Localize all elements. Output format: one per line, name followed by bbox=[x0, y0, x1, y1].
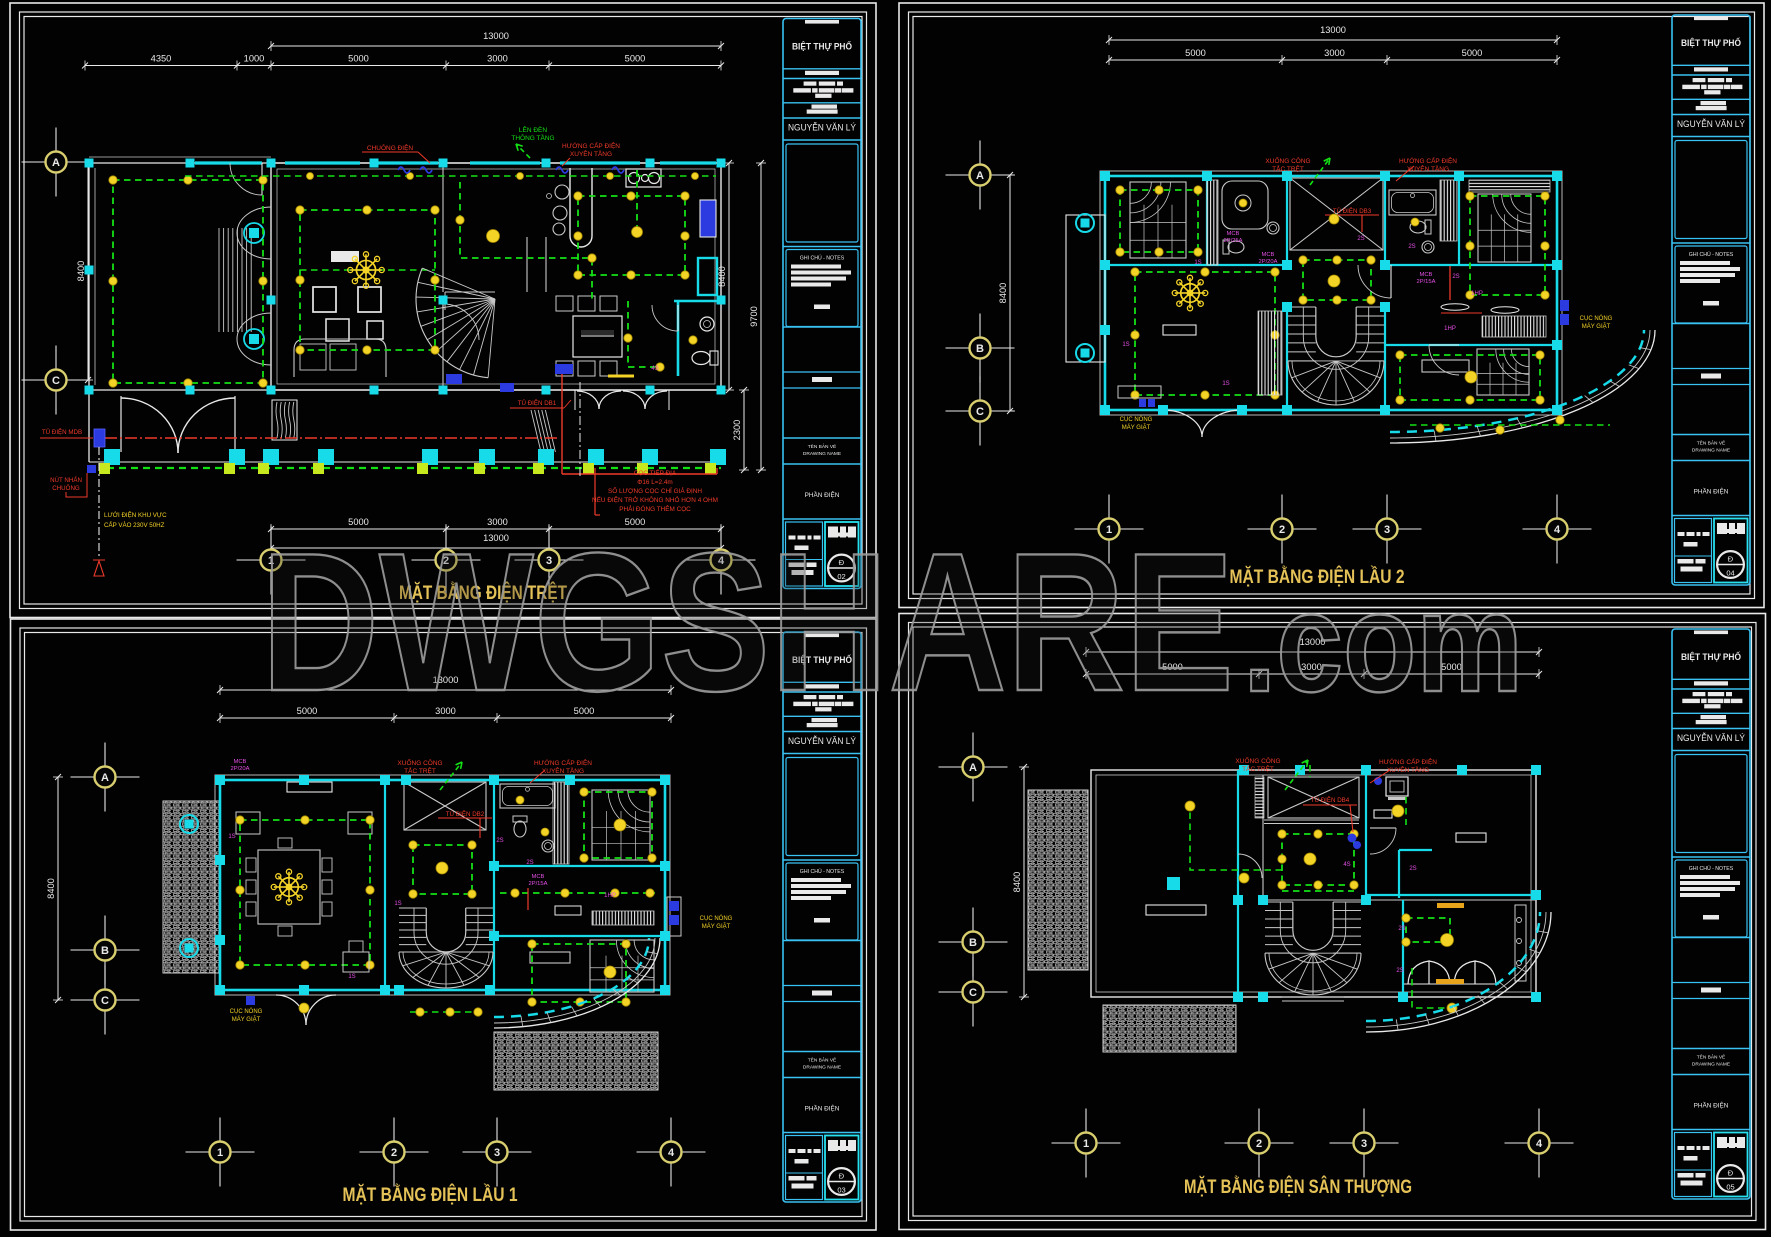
svg-text:TỦ ĐIỆN DB3: TỦ ĐIỆN DB3 bbox=[1333, 207, 1372, 215]
svg-text:Đ: Đ bbox=[1728, 555, 1734, 564]
svg-text:TẮC TRỆT: TẮC TRỆT bbox=[404, 766, 436, 775]
svg-text:2: 2 bbox=[391, 1147, 397, 1159]
svg-text:NGUYỄN VĂN LÝ: NGUYỄN VĂN LÝ bbox=[788, 122, 856, 133]
svg-text:MÁY GIẶT: MÁY GIẶT bbox=[702, 923, 731, 930]
svg-text:A: A bbox=[976, 170, 984, 182]
svg-text:2S: 2S bbox=[1452, 274, 1459, 280]
svg-text:2P/20A: 2P/20A bbox=[1258, 259, 1277, 265]
svg-text:MÁY GIẶT: MÁY GIẶT bbox=[1582, 323, 1611, 330]
svg-text:CỤC NÓNG: CỤC NÓNG bbox=[700, 915, 733, 922]
svg-text:MCB: MCB bbox=[234, 759, 247, 765]
svg-text:TỦ ĐIỆN DB4: TỦ ĐIỆN DB4 bbox=[1311, 796, 1350, 804]
svg-text:DRAWING NAME: DRAWING NAME bbox=[803, 1065, 841, 1071]
svg-text:BIỆT THỰ PHỐ: BIỆT THỰ PHỐ bbox=[1681, 37, 1741, 48]
svg-text:CHUÔNG ĐIỆN: CHUÔNG ĐIỆN bbox=[367, 143, 414, 152]
svg-text:4S: 4S bbox=[651, 366, 658, 372]
svg-text:2S: 2S bbox=[1398, 926, 1405, 932]
svg-text:.com: .com bbox=[1243, 563, 1523, 722]
svg-text:MÁY GIẶT: MÁY GIẶT bbox=[1122, 424, 1151, 431]
svg-text:2P/15A: 2P/15A bbox=[528, 881, 547, 887]
svg-text:2S: 2S bbox=[496, 838, 503, 844]
svg-text:A: A bbox=[52, 157, 60, 169]
svg-text:5000: 5000 bbox=[625, 54, 646, 64]
svg-text:1HP: 1HP bbox=[1471, 291, 1483, 297]
svg-text:NGUYỄN VĂN LÝ: NGUYỄN VĂN LÝ bbox=[1677, 732, 1745, 743]
svg-text:2: 2 bbox=[1256, 1138, 1262, 1150]
svg-text:TỦ ĐIỆN DB2: TỦ ĐIỆN DB2 bbox=[446, 810, 485, 818]
svg-text:GHI CHÚ - NOTES: GHI CHÚ - NOTES bbox=[800, 868, 845, 875]
svg-text:2300: 2300 bbox=[732, 420, 742, 441]
svg-text:NGUYỄN VĂN LÝ: NGUYỄN VĂN LÝ bbox=[1677, 118, 1745, 129]
svg-text:1S: 1S bbox=[348, 974, 355, 980]
svg-text:DWGSHARE: DWGSHARE bbox=[261, 512, 1234, 732]
svg-text:Φ16 L=2.4m: Φ16 L=2.4m bbox=[637, 479, 672, 486]
svg-text:13000: 13000 bbox=[483, 31, 509, 41]
svg-text:1HP: 1HP bbox=[1444, 326, 1456, 332]
svg-text:2S: 2S bbox=[526, 860, 533, 866]
svg-text:CỤC NÓNG: CỤC NÓNG bbox=[230, 1008, 263, 1015]
svg-text:B: B bbox=[969, 937, 977, 949]
svg-text:Đ: Đ bbox=[1728, 1169, 1734, 1178]
svg-text:Đ: Đ bbox=[839, 1172, 845, 1181]
svg-text:5000: 5000 bbox=[1462, 48, 1483, 58]
svg-text:MẶT BẰNG ĐIỆN LẦU 1: MẶT BẰNG ĐIỆN LẦU 1 bbox=[343, 1184, 518, 1206]
svg-text:4: 4 bbox=[668, 1147, 675, 1159]
svg-text:NGUYỄN VĂN LÝ: NGUYỄN VĂN LÝ bbox=[788, 735, 856, 746]
svg-text:A: A bbox=[101, 772, 109, 784]
svg-text:CỤC NÓNG: CỤC NÓNG bbox=[1120, 416, 1153, 423]
svg-text:2S: 2S bbox=[1357, 236, 1364, 242]
svg-text:BIỆT THỰ PHỐ: BIỆT THỰ PHỐ bbox=[792, 41, 852, 52]
svg-text:DRAWING NAME: DRAWING NAME bbox=[1692, 1062, 1730, 1068]
svg-text:GHI CHÚ - NOTES: GHI CHÚ - NOTES bbox=[800, 255, 845, 262]
svg-text:3000: 3000 bbox=[487, 54, 508, 64]
svg-text:CỤC NÓNG: CỤC NÓNG bbox=[1580, 315, 1613, 322]
svg-text:CHUÔNG: CHUÔNG bbox=[52, 485, 80, 492]
svg-text:MẶT BẰNG ĐIỆN SÂN THƯỢNG: MẶT BẰNG ĐIỆN SÂN THƯỢNG bbox=[1184, 1176, 1412, 1198]
svg-text:MCB: MCB bbox=[1420, 272, 1433, 278]
svg-text:5000: 5000 bbox=[348, 54, 369, 64]
svg-text:1S: 1S bbox=[1222, 381, 1229, 387]
svg-text:DRAWING NAME: DRAWING NAME bbox=[803, 451, 841, 457]
svg-text:TỦ ĐIỆN MDB: TỦ ĐIỆN MDB bbox=[42, 428, 82, 436]
svg-text:5000: 5000 bbox=[1185, 48, 1206, 58]
svg-text:LƯỚI ĐIỆN KHU VỰC: LƯỚI ĐIỆN KHU VỰC bbox=[104, 511, 167, 519]
svg-text:2S: 2S bbox=[1408, 244, 1415, 250]
svg-text:1S: 1S bbox=[394, 901, 401, 907]
svg-text:3: 3 bbox=[1361, 1138, 1367, 1150]
svg-text:C: C bbox=[52, 375, 60, 387]
svg-text:MCB: MCB bbox=[1227, 231, 1240, 237]
svg-text:1S: 1S bbox=[228, 834, 235, 840]
svg-text:MÁY GIẶT: MÁY GIẶT bbox=[232, 1016, 261, 1023]
svg-text:05: 05 bbox=[1726, 1183, 1734, 1192]
svg-text:8400: 8400 bbox=[717, 266, 727, 287]
svg-text:03: 03 bbox=[837, 1186, 845, 1195]
svg-text:2P/25A: 2P/25A bbox=[1223, 238, 1242, 244]
svg-text:TẮC TRỆT: TẮC TRỆT bbox=[1272, 164, 1304, 173]
svg-text:B: B bbox=[976, 343, 984, 355]
svg-text:13000: 13000 bbox=[1320, 25, 1346, 35]
svg-text:2S: 2S bbox=[1409, 866, 1416, 872]
svg-text:4350: 4350 bbox=[151, 54, 172, 64]
svg-text:4: 4 bbox=[1554, 524, 1561, 536]
svg-text:BIỆT THỰ PHỐ: BIỆT THỰ PHỐ bbox=[1681, 651, 1741, 662]
svg-text:TỦ ĐIỆN DB1: TỦ ĐIỆN DB1 bbox=[518, 399, 557, 407]
svg-text:B: B bbox=[101, 945, 109, 957]
svg-text:4: 4 bbox=[1536, 1138, 1543, 1150]
svg-text:1HP: 1HP bbox=[604, 893, 616, 899]
svg-text:TẮC TRỆT: TẮC TRỆT bbox=[1242, 764, 1274, 773]
svg-text:LÊN ĐÈN: LÊN ĐÈN bbox=[519, 125, 547, 134]
svg-text:NÚT NHẤN: NÚT NHẤN bbox=[50, 477, 82, 484]
svg-text:1: 1 bbox=[217, 1147, 223, 1159]
svg-text:MCB: MCB bbox=[1262, 252, 1275, 258]
svg-text:04: 04 bbox=[1726, 569, 1734, 578]
svg-text:MCB: MCB bbox=[532, 874, 545, 880]
svg-text:8400: 8400 bbox=[46, 878, 56, 899]
svg-text:C: C bbox=[101, 995, 109, 1007]
svg-text:C: C bbox=[969, 987, 977, 999]
svg-text:8400: 8400 bbox=[1012, 872, 1022, 893]
svg-text:1: 1 bbox=[1083, 1138, 1089, 1150]
svg-text:2: 2 bbox=[1279, 524, 1285, 536]
svg-text:1S: 1S bbox=[1194, 260, 1201, 266]
svg-text:3: 3 bbox=[494, 1147, 500, 1159]
svg-text:C: C bbox=[976, 406, 984, 418]
svg-text:CẤP VÀO 230V 50HZ: CẤP VÀO 230V 50HZ bbox=[104, 522, 165, 529]
svg-text:2P/15A: 2P/15A bbox=[1416, 279, 1435, 285]
svg-text:4S: 4S bbox=[1343, 862, 1350, 868]
svg-text:9700: 9700 bbox=[749, 306, 759, 327]
svg-text:2P/20A: 2P/20A bbox=[230, 766, 249, 772]
svg-text:3: 3 bbox=[1384, 524, 1390, 536]
svg-text:GHI CHÚ - NOTES: GHI CHÚ - NOTES bbox=[1689, 251, 1734, 258]
svg-text:2S: 2S bbox=[1396, 968, 1403, 974]
svg-text:A: A bbox=[969, 762, 977, 774]
svg-text:DRAWING NAME: DRAWING NAME bbox=[1692, 448, 1730, 454]
svg-text:8400: 8400 bbox=[998, 283, 1008, 304]
svg-text:GHI CHÚ - NOTES: GHI CHÚ - NOTES bbox=[1689, 865, 1734, 872]
svg-text:1000: 1000 bbox=[244, 54, 265, 64]
svg-text:1S: 1S bbox=[1122, 342, 1129, 348]
svg-text:3000: 3000 bbox=[1324, 48, 1345, 58]
